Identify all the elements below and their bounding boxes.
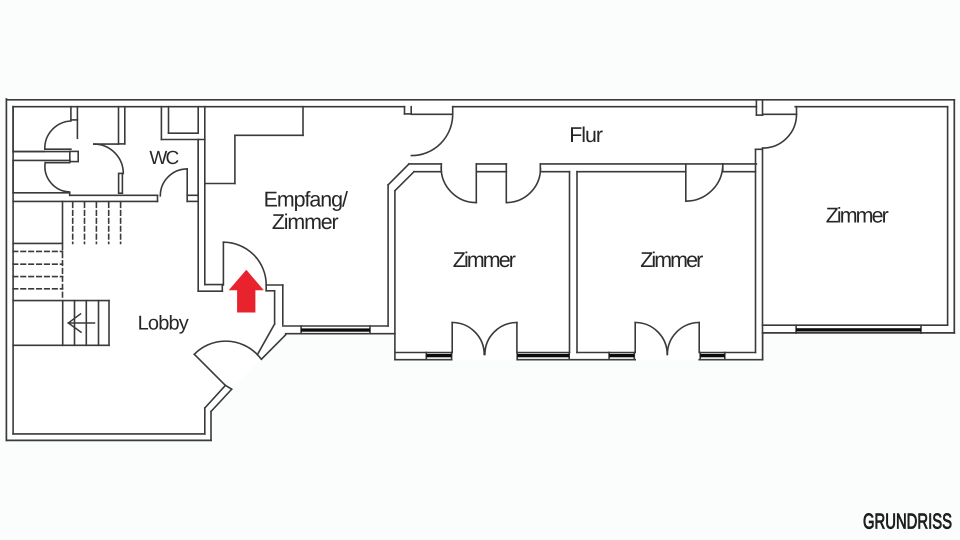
svg-text:WC: WC xyxy=(149,148,178,169)
svg-text:GRUNDRISS: GRUNDRISS xyxy=(863,510,952,534)
svg-text:Zimmer: Zimmer xyxy=(453,248,516,272)
svg-text:Zimmer: Zimmer xyxy=(826,204,889,228)
svg-text:Lobby: Lobby xyxy=(138,313,189,335)
svg-text:Flur: Flur xyxy=(569,123,603,147)
svg-text:Zimmer: Zimmer xyxy=(272,210,339,234)
svg-text:Zimmer: Zimmer xyxy=(640,248,703,272)
svg-text:Empfang/: Empfang/ xyxy=(264,188,348,212)
